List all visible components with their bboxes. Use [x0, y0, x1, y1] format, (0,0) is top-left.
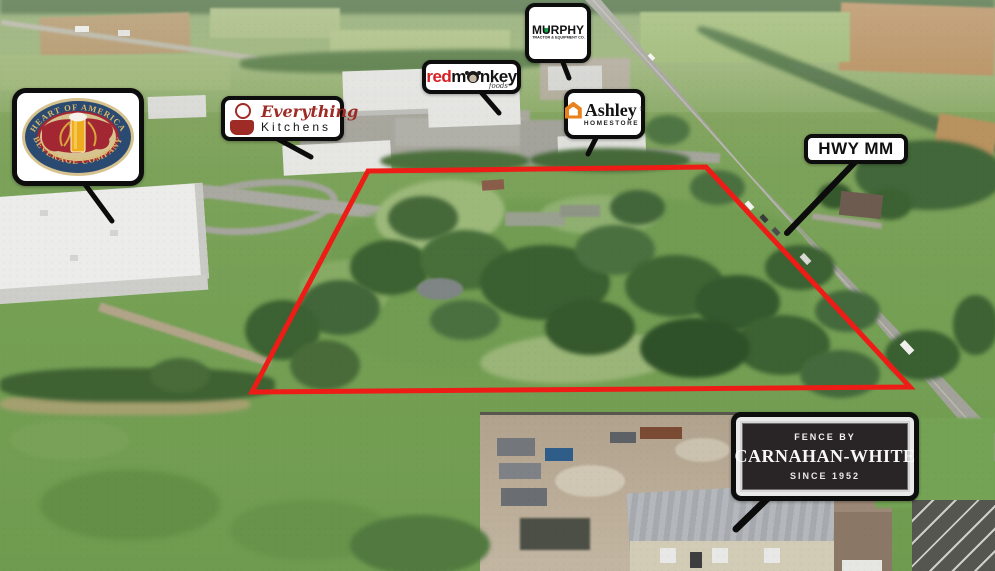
- kitchens-cup-icon: [230, 102, 256, 136]
- murphy-label: MURPHY TRACTOR & EQUIPMENT CO.: [525, 3, 591, 63]
- redmonkey-label: red m nkey foods: [422, 60, 521, 94]
- ashley-house-icon: [565, 102, 582, 119]
- redmonkey-pointer: [480, 91, 499, 113]
- murphy-part-u-shamrock: U: [542, 24, 551, 36]
- murphy-subtitle: TRACTOR & EQUIPMENT CO.: [532, 36, 585, 40]
- ashley-name: Ashley: [585, 101, 637, 119]
- ashley-label: Ashley ® HOMESTORE: [564, 89, 645, 139]
- carnahan-line3: SINCE 1952: [790, 471, 860, 481]
- beverage-company-logo: HEART OF AMERICA BEVERAGE COMPANY: [18, 94, 138, 180]
- everything-kitchens-label: Everything Kitchens: [221, 96, 344, 141]
- beverage-pointer: [84, 183, 112, 221]
- hwy-pointer: [787, 160, 857, 233]
- hwy-mm-label: HWY MM: [804, 134, 908, 164]
- murphy-part-rphy: RPHY: [551, 23, 584, 37]
- carnahan-line2: CARNAHAN-WHITE: [735, 446, 916, 467]
- beverage-company-label: HEART OF AMERICA BEVERAGE COMPANY: [12, 88, 144, 186]
- monkey-face-icon: [467, 71, 479, 83]
- murphy-wordmark: MURPHY: [532, 24, 584, 36]
- ashley-trademark: ®: [640, 107, 644, 113]
- aerial-photo: HEART OF AMERICA BEVERAGE COMPANY Everyt…: [0, 0, 995, 571]
- carnahan-plaque: FENCE BY CARNAHAN-WHITE SINCE 1952: [740, 421, 910, 492]
- kitchens-line1: Everything: [261, 104, 358, 120]
- carnahan-line1: FENCE BY: [794, 432, 856, 442]
- ashley-homestore: HOMESTORE: [584, 120, 639, 127]
- carnahan-white-sign: FENCE BY CARNAHAN-WHITE SINCE 1952: [731, 412, 919, 501]
- kitchens-line2: Kitchens: [261, 120, 358, 134]
- murphy-part-m: M: [532, 23, 542, 37]
- redmonkey-part-red: red: [426, 67, 451, 87]
- carnahan-pointer: [736, 497, 769, 529]
- redmonkey-foods: foods: [489, 82, 508, 90]
- kitchens-text: Everything Kitchens: [261, 104, 358, 134]
- redmonkey-part-m: m: [451, 67, 466, 87]
